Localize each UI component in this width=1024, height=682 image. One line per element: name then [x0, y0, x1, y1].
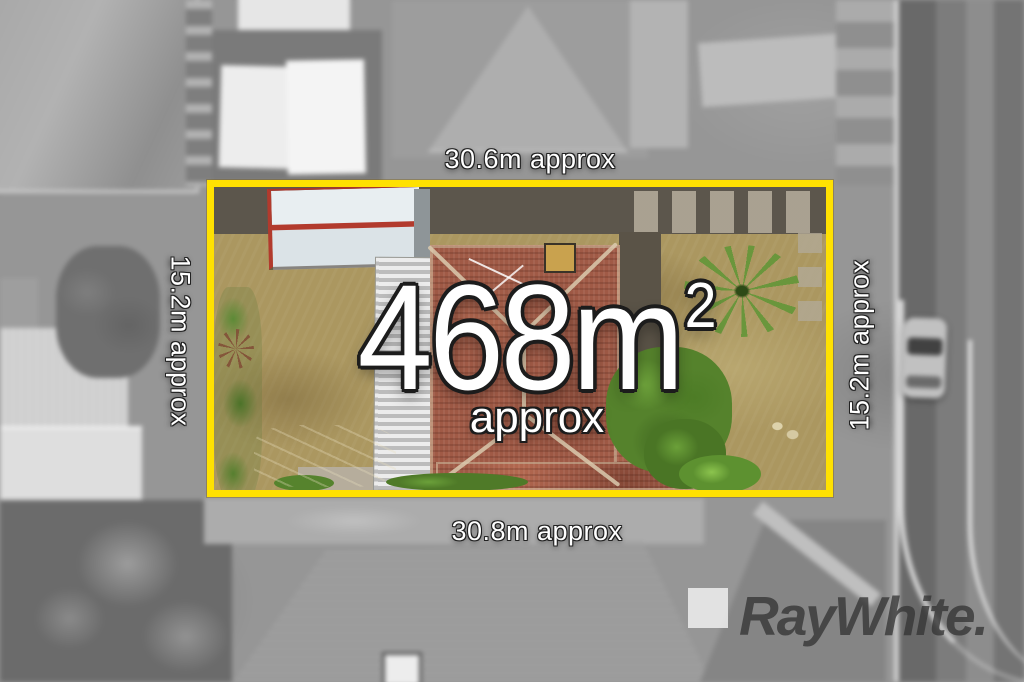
dimension-label-right: 15.2m approx [845, 259, 876, 430]
dimension-label-top: 30.6m approx [444, 144, 615, 175]
garden-stones [766, 415, 804, 443]
dimension-label-left: 15.2m approx [165, 255, 196, 426]
neighbor-shed-b [286, 59, 366, 174]
squared-exponent: 2 [684, 275, 716, 336]
neighbor-driveway [630, 0, 688, 148]
land-area-overlay: 468m2 approx [338, 266, 737, 443]
car-windshield [907, 337, 943, 355]
aerial-listing-image: 30.6m approx 30.8m approx 15.2m approx 1… [0, 0, 1024, 682]
green-bush [679, 455, 761, 493]
raywhite-logo-square-icon [688, 588, 728, 628]
stepping-stones-side [798, 233, 822, 325]
neighbor-roof-left-small [0, 278, 38, 330]
dimension-label-bottom: 30.8m approx [451, 516, 622, 547]
land-area-value: 468m2 [358, 266, 717, 409]
car-rear-window [906, 375, 941, 388]
raywhite-wordmark: RayWhite. [739, 584, 987, 648]
parked-car [902, 317, 948, 398]
neighbor-shed-a [219, 65, 292, 169]
hedge-bottom [386, 473, 528, 491]
dark-yard-bottom-left [0, 500, 232, 682]
neighbor-chimney [382, 652, 422, 682]
shrubs-left [56, 246, 160, 378]
nature-strip [836, 0, 902, 185]
neighbor-roof-bottom [228, 536, 716, 682]
neighbor-roof-top-left [0, 0, 199, 193]
red-cordyline-plant [218, 329, 254, 369]
fence-strip [186, 0, 212, 186]
stepping-stones [634, 191, 822, 233]
